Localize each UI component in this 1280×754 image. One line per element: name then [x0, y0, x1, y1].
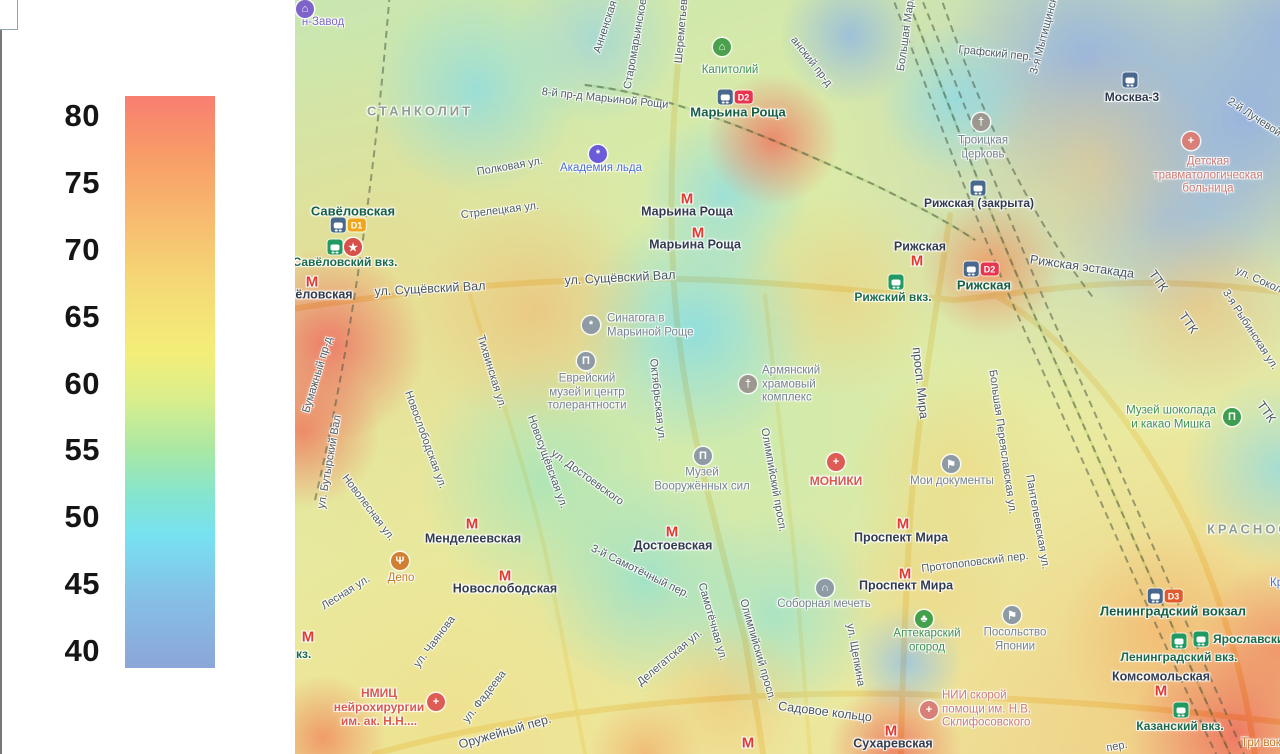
- hospital-icon[interactable]: +: [827, 453, 845, 471]
- legend-tick-60: 60: [20, 367, 100, 401]
- legend-tick-80: 80: [20, 99, 100, 133]
- legend-panel: 807570656055504540: [0, 0, 295, 754]
- line-badge-d2: D2: [735, 91, 753, 104]
- street-3-rybinskaya: 3-я Рыбинская ул.: [1219, 287, 1280, 372]
- train-station-icon[interactable]: D2: [964, 262, 999, 277]
- station-rizhskaya-closed[interactable]: Рижская (закрыта): [924, 196, 1034, 210]
- church-icon[interactable]: †: [739, 375, 757, 393]
- synagogue-icon[interactable]: *: [582, 316, 600, 334]
- hospital-icon[interactable]: +: [427, 693, 445, 711]
- metro-icon[interactable]: М: [306, 274, 319, 291]
- corner-notch: [0, 0, 18, 30]
- train-station-icon[interactable]: D3: [1148, 589, 1183, 604]
- train-station-icon[interactable]: [971, 181, 986, 196]
- street-staromarinskoe: Старомарьинское: [622, 0, 651, 90]
- metro-icon[interactable]: М: [1155, 683, 1168, 700]
- poi-chocolate-museum[interactable]: Музей шоколадаи какао Мишка: [1126, 404, 1216, 431]
- poi-nmic-neuro[interactable]: НМИЦнейрохирургииим. ак. Н.Н....: [334, 686, 424, 728]
- station-kazansky-vkz[interactable]: Казанский вкз.: [1136, 719, 1223, 733]
- metro-icon[interactable]: М: [911, 253, 924, 270]
- train-icon: [328, 240, 343, 255]
- poi-moi-dokumenty[interactable]: Мои документы: [910, 475, 994, 489]
- hospital-icon[interactable]: +: [1182, 132, 1200, 150]
- poi-children-hospital[interactable]: Детскаятравматологическаябольница: [1153, 156, 1262, 197]
- train-station-icon[interactable]: D1: [331, 218, 366, 233]
- street-b-marinskaya: Большая Марьинская: [895, 0, 923, 72]
- train-icon: [1123, 73, 1138, 88]
- street-annenskaya: Анненская: [591, 0, 620, 55]
- station-leningradsky-vkz[interactable]: Ленинградский вкз.: [1121, 650, 1238, 664]
- street-novoslobodskaya: Новослободская ул.: [401, 389, 448, 490]
- train-icon: [971, 181, 986, 196]
- street-chayanova: ул. Чаянова: [411, 614, 458, 671]
- metro-savelovskaya[interactable]: ёловская: [295, 288, 352, 303]
- station-yaroslavsky-vkz[interactable]: Ярославский вкз.: [1213, 632, 1280, 646]
- poi-armed-forces-museum[interactable]: МузейВооружённых сил: [654, 466, 750, 493]
- street-shchepkina: ул. Щепкина: [843, 623, 867, 688]
- district-stankolit: СТАНКОЛИТ: [367, 103, 473, 118]
- food-hall-icon[interactable]: Ψ: [391, 552, 409, 570]
- poi-zavod[interactable]: н-Завод: [302, 16, 344, 30]
- train-icon: [1148, 589, 1163, 604]
- poi-krasnoselskaya-partial[interactable]: Красносельская: [1270, 577, 1280, 591]
- labels-layer: н-Завод⌂СТАНКОЛИТ8-й пр-д Марьиной РощиА…: [295, 0, 1280, 754]
- poi-sklifosovsky[interactable]: НИИ скоройпомощи им. Н.В.Склифосовского: [942, 690, 1031, 731]
- metro-icon[interactable]: М: [466, 516, 479, 533]
- train-station-icon[interactable]: [889, 275, 904, 290]
- legend-tick-65: 65: [20, 300, 100, 334]
- metro-icon[interactable]: М: [897, 516, 910, 533]
- station-vkz-partial[interactable]: кз.: [296, 647, 311, 661]
- station-savelovskaya-d1[interactable]: Савёловская: [311, 203, 395, 218]
- ice-rink-icon[interactable]: *: [589, 145, 607, 163]
- map-canvas[interactable]: н-Завод⌂СТАНКОЛИТ8-й пр-д Марьиной РощиА…: [295, 0, 1280, 754]
- street-sushchevsky-val-1: ул. Сущёвский Вал: [374, 279, 486, 300]
- mosque-icon[interactable]: ∩: [816, 579, 834, 597]
- train-icon: [718, 90, 733, 105]
- street-tikhvinskaya: Тихвинская ул.: [474, 334, 509, 411]
- train-icon: [1194, 632, 1209, 647]
- train-station-icon[interactable]: [328, 240, 343, 255]
- train-station-icon[interactable]: [1194, 632, 1209, 647]
- train-icon: [1174, 703, 1189, 718]
- metro-icon[interactable]: М: [742, 735, 755, 752]
- station-leningradsky-vokzal-d3[interactable]: Ленинградский вокзал: [1100, 603, 1246, 618]
- poi-moniki[interactable]: МОНИКИ: [810, 474, 863, 488]
- poi-japan-embassy[interactable]: ПосольствоЯпонии: [984, 626, 1047, 653]
- poi-jewish-museum[interactable]: Еврейскиймузей и центртолерантности: [548, 373, 627, 414]
- metro-icon[interactable]: М: [666, 524, 679, 541]
- legend-tick-50: 50: [20, 500, 100, 534]
- street-3-mytishchinskaya: 3-я Мытищинская: [1028, 0, 1064, 76]
- street-butyrsky-val: ул. Бутырский Вал: [315, 414, 344, 510]
- street-sushchevsky-val-2: ул. Сущёвский Вал: [564, 268, 676, 289]
- station-marina-roshcha-d2[interactable]: Марьина Роща: [690, 104, 785, 119]
- legend-tick-40: 40: [20, 634, 100, 668]
- street-bumazhny: Бумажный пр-д: [300, 335, 335, 414]
- museum-icon[interactable]: П: [694, 447, 712, 465]
- street-grafsky: Графский пер.: [958, 44, 1032, 65]
- legend-tick-70: 70: [20, 233, 100, 267]
- train-icon: [889, 275, 904, 290]
- train-station-icon[interactable]: [1172, 634, 1187, 649]
- aeroexpress-icon[interactable]: ★: [344, 238, 362, 256]
- street-streletskaya: Стрелецкая ул.: [460, 200, 540, 222]
- street-8-proezd: 8-й пр-д Марьиной Рощи: [541, 86, 669, 112]
- poi-armenian-complex[interactable]: Армянскийхрамовыйкомплекс: [762, 365, 820, 406]
- metro-icon[interactable]: М: [302, 629, 315, 646]
- street-sheremetyevskaya: Шереметьевская: [673, 0, 694, 64]
- factory-icon[interactable]: ⌂: [296, 0, 314, 18]
- hospital-icon[interactable]: +: [920, 701, 938, 719]
- street-rizhskaya-estakada: Рижская эстакада: [1029, 252, 1135, 281]
- poi-synagogue[interactable]: Синагога вМарьиной Роще: [607, 312, 694, 339]
- legend-tick-45: 45: [20, 567, 100, 601]
- poi-ice-academy[interactable]: Академия льда: [560, 162, 642, 176]
- train-station-icon[interactable]: [1174, 703, 1189, 718]
- museum-icon[interactable]: П: [577, 352, 595, 370]
- poi-cathedral-mosque[interactable]: Соборная мечеть: [777, 598, 870, 612]
- street-lesnaya: Лесная ул.: [319, 573, 372, 613]
- street-olimpiysky-2: Олимпийский просп.: [736, 598, 777, 703]
- metro-icon[interactable]: М: [681, 191, 694, 208]
- station-savelovsky-vkz[interactable]: Савёловский вкз.: [295, 255, 397, 269]
- street-2-luchevoy: 2-й Лучевой просек: [1225, 96, 1280, 161]
- street-oktyabrskaya: Октябрьская ул.: [646, 358, 668, 442]
- street-b-pereyaslavskaya: Большая Переяславская ул.: [985, 369, 1018, 515]
- street-per-partial: пер.: [1105, 739, 1128, 754]
- poi-tri-vokzala[interactable]: Три вокзала: [1241, 737, 1280, 751]
- legend-colorbar: [125, 96, 215, 668]
- line-badge-d3: D3: [1165, 590, 1183, 603]
- street-ttk-3: ТТК: [1253, 399, 1278, 426]
- street-samotechnaya: Самотёчная ул.: [695, 582, 730, 663]
- train-station-icon[interactable]: [1123, 73, 1138, 88]
- street-protopopovsky: Протопоповский пер.: [921, 550, 1029, 576]
- metro-icon[interactable]: М: [692, 225, 705, 242]
- line-badge-d2: D2: [981, 263, 999, 276]
- metro-icon[interactable]: М: [899, 566, 912, 583]
- train-icon: [331, 218, 346, 233]
- gov-office-icon[interactable]: ⚑: [942, 455, 960, 473]
- street-delegatskaya: Делегатская ул.: [635, 627, 705, 689]
- poi-troitskaya-church[interactable]: Троицкаяцерковь: [958, 134, 1008, 161]
- street-ttk-2: ТТК: [1175, 310, 1200, 337]
- church-icon[interactable]: †: [972, 113, 990, 131]
- district-krasnoselskaya: КРАСНОСЕЛЬСКАЯ: [1207, 521, 1280, 536]
- street-novolesnaya: Новолесная ул.: [339, 472, 397, 543]
- legend-tick-55: 55: [20, 433, 100, 467]
- line-badge-d1: D1: [348, 219, 366, 232]
- poi-depo[interactable]: Депо: [388, 572, 415, 586]
- street-murmansky: анский пр-д: [787, 34, 834, 89]
- metro-prospekt-mira-1[interactable]: Проспект Мира: [854, 531, 948, 546]
- heatmap-screenshot: 807570656055504540: [0, 0, 1280, 754]
- embassy-icon[interactable]: ⚑: [1003, 606, 1021, 624]
- poi-kapitoliy[interactable]: Капитолий: [702, 64, 759, 78]
- street-fadeeva: ул. Фадеева: [461, 668, 510, 725]
- museum-icon[interactable]: П: [1223, 408, 1241, 426]
- train-icon: [1172, 634, 1187, 649]
- street-prospekt-mira: просп. Мира: [909, 346, 931, 419]
- metro-mendeleevskaya[interactable]: Менделеевская: [425, 532, 521, 547]
- metro-icon[interactable]: М: [885, 723, 898, 740]
- street-olimpiysky-1: Олимпийский просп.: [757, 427, 788, 533]
- poi-aptekarsky-ogorod[interactable]: Аптекарскийогород: [893, 627, 960, 654]
- metro-dostoevskaya[interactable]: Достоевская: [634, 539, 713, 554]
- street-sadovoe-koltso: Садовое кольцо: [777, 699, 872, 725]
- station-moskva-3[interactable]: Москва-3: [1105, 90, 1159, 104]
- street-ttk-1: ТТК: [1145, 268, 1170, 295]
- station-rizhsky-vkz[interactable]: Рижский вкз.: [854, 290, 931, 304]
- mall-icon[interactable]: ⌂: [713, 38, 731, 56]
- legend-tick-75: 75: [20, 166, 100, 200]
- window-edge-line: [0, 0, 2, 754]
- metro-icon[interactable]: М: [499, 568, 512, 585]
- train-station-icon[interactable]: D2: [718, 90, 753, 105]
- street-polkovaya: Полковая ул.: [476, 155, 544, 179]
- garden-icon[interactable]: ♣: [915, 610, 933, 628]
- train-icon: [964, 262, 979, 277]
- station-rizhskaya-d2[interactable]: Рижская: [957, 277, 1011, 292]
